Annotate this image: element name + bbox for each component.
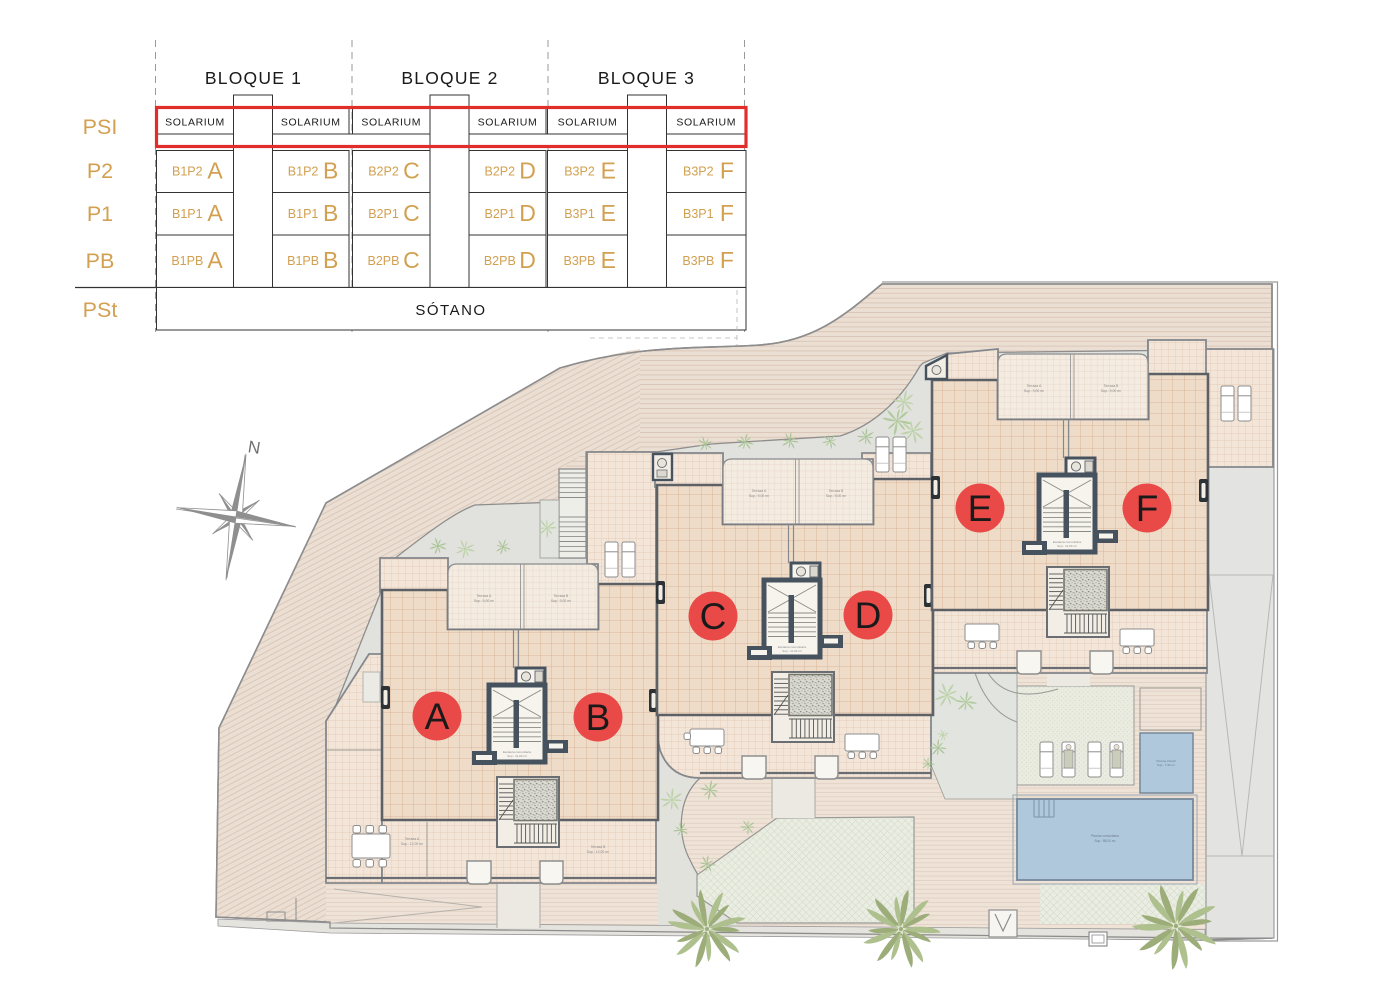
svg-text:Sup.: 9,00 m²: Sup.: 9,00 m² [474, 599, 495, 603]
svg-text:E: E [601, 247, 616, 273]
svg-text:Sup.: 7,90 m²: Sup.: 7,90 m² [1157, 763, 1175, 767]
svg-text:Piscina comunitaria: Piscina comunitaria [1091, 834, 1119, 838]
svg-text:Terraza B: Terraza B [829, 489, 844, 493]
svg-text:B1PB: B1PB [171, 254, 203, 268]
svg-text:SOLARIUM: SOLARIUM [361, 117, 421, 129]
svg-text:B: B [323, 247, 338, 273]
svg-text:A: A [207, 158, 223, 184]
svg-text:B2PB: B2PB [368, 254, 400, 268]
svg-text:PSI: PSI [83, 115, 118, 139]
svg-text:P2: P2 [87, 159, 113, 183]
svg-text:B2P2: B2P2 [368, 165, 399, 179]
svg-text:Sup.: 9,00 m²: Sup.: 9,00 m² [551, 599, 572, 603]
svg-text:B: B [323, 200, 338, 226]
svg-text:Terraza A: Terraza A [477, 594, 492, 598]
svg-text:E: E [601, 158, 616, 184]
svg-text:B2P1: B2P1 [485, 207, 516, 221]
svg-text:B3P2: B3P2 [683, 165, 714, 179]
svg-text:B2PB: B2PB [484, 254, 516, 268]
svg-text:BLOQUE 3: BLOQUE 3 [598, 68, 695, 88]
svg-text:C: C [403, 247, 420, 273]
svg-text:Terraza B: Terraza B [1104, 384, 1119, 388]
svg-text:F: F [720, 247, 734, 273]
svg-text:F: F [720, 158, 734, 184]
svg-text:C: C [403, 200, 420, 226]
svg-text:B: B [586, 697, 611, 738]
svg-text:B1P2: B1P2 [288, 165, 319, 179]
svg-text:SOLARIUM: SOLARIUM [478, 117, 538, 129]
svg-text:SÓTANO: SÓTANO [415, 302, 486, 319]
svg-text:Sup.: 9,00 m²: Sup.: 9,00 m² [749, 494, 770, 498]
svg-text:B2P1: B2P1 [368, 207, 399, 221]
svg-text:PSt: PSt [83, 298, 118, 322]
svg-text:Terraza B: Terraza B [591, 845, 606, 849]
svg-text:A: A [207, 247, 223, 273]
svg-text:N: N [247, 437, 262, 458]
svg-text:P1: P1 [87, 202, 113, 226]
svg-text:BLOQUE 2: BLOQUE 2 [401, 68, 498, 88]
svg-text:B1P1: B1P1 [288, 207, 319, 221]
svg-text:A: A [207, 200, 223, 226]
svg-text:C: C [700, 596, 727, 637]
svg-text:Terraza A: Terraza A [1027, 384, 1042, 388]
svg-text:F: F [720, 200, 734, 226]
svg-text:C: C [403, 158, 420, 184]
svg-text:B1P2: B1P2 [172, 165, 203, 179]
svg-text:E: E [601, 200, 616, 226]
svg-text:B3PB: B3PB [564, 254, 596, 268]
svg-text:D: D [519, 247, 536, 273]
svg-text:SOLARIUM: SOLARIUM [165, 117, 225, 129]
svg-text:PB: PB [86, 249, 115, 273]
svg-text:Sup.: 12,00 m²: Sup.: 12,00 m² [587, 850, 610, 854]
svg-text:F: F [1136, 488, 1159, 529]
svg-text:Sup.: 9,00 m²: Sup.: 9,00 m² [1024, 389, 1045, 393]
svg-text:B: B [323, 158, 338, 184]
svg-text:BLOQUE 1: BLOQUE 1 [205, 68, 302, 88]
svg-text:Sup.: 88,00 m²: Sup.: 88,00 m² [1095, 839, 1116, 843]
svg-text:B3P1: B3P1 [683, 207, 714, 221]
svg-text:B3PB: B3PB [682, 254, 714, 268]
svg-text:B2P2: B2P2 [485, 165, 516, 179]
svg-text:B1P1: B1P1 [172, 207, 203, 221]
svg-text:Sup.: 9,00 m²: Sup.: 9,00 m² [826, 494, 847, 498]
svg-text:Terraza B: Terraza B [554, 594, 569, 598]
svg-text:SOLARIUM: SOLARIUM [281, 117, 341, 129]
svg-text:Sup.: 12,00 m²: Sup.: 12,00 m² [401, 842, 424, 846]
svg-text:E: E [968, 488, 993, 529]
svg-text:SOLARIUM: SOLARIUM [676, 117, 736, 129]
svg-text:B1PB: B1PB [287, 254, 319, 268]
svg-text:Sup.: 9,00 m²: Sup.: 9,00 m² [1101, 389, 1122, 393]
svg-text:D: D [519, 200, 536, 226]
svg-text:SOLARIUM: SOLARIUM [558, 117, 618, 129]
svg-text:Sup.: 11,00 m²: Sup.: 11,00 m² [782, 649, 801, 653]
svg-text:D: D [855, 595, 882, 636]
svg-text:D: D [519, 158, 536, 184]
svg-text:Sup.: 11,00 m²: Sup.: 11,00 m² [1057, 544, 1076, 548]
svg-text:A: A [425, 696, 450, 737]
svg-text:Sup.: 11,00 m²: Sup.: 11,00 m² [507, 754, 526, 758]
svg-text:B3P2: B3P2 [564, 165, 595, 179]
svg-text:Terraza A: Terraza A [752, 489, 767, 493]
svg-text:Terraza A: Terraza A [405, 837, 420, 841]
svg-text:B3P1: B3P1 [564, 207, 595, 221]
